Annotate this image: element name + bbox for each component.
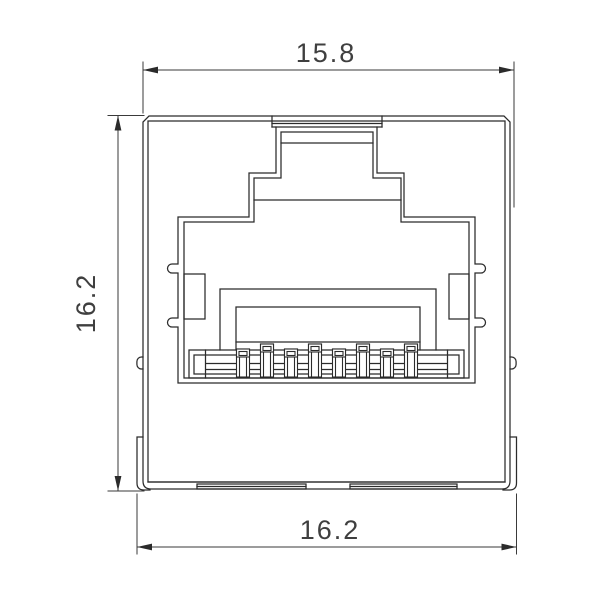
right-side-bump <box>510 357 516 369</box>
left-side-bump <box>137 357 143 369</box>
arrowhead-up <box>115 116 122 131</box>
dimension-side-height: 16.2 <box>71 116 144 492</box>
arrowhead-right <box>502 544 517 551</box>
dimension-label-side: 16.2 <box>71 273 101 334</box>
arrowhead-right <box>499 67 514 74</box>
dimension-label-bottom: 16.2 <box>300 515 361 545</box>
arrowhead-left <box>137 544 152 551</box>
dimension-bottom-width: 16.2 <box>137 494 517 554</box>
body-outline <box>143 116 510 489</box>
arrowhead-down <box>115 476 122 491</box>
dimension-label-top: 15.8 <box>296 38 357 68</box>
technical-drawing: 15.8 16.2 16.2 <box>0 0 600 600</box>
arrowhead-left <box>143 67 158 74</box>
drawing-canvas: 15.8 16.2 16.2 <box>0 0 600 600</box>
connector-body <box>137 116 517 490</box>
